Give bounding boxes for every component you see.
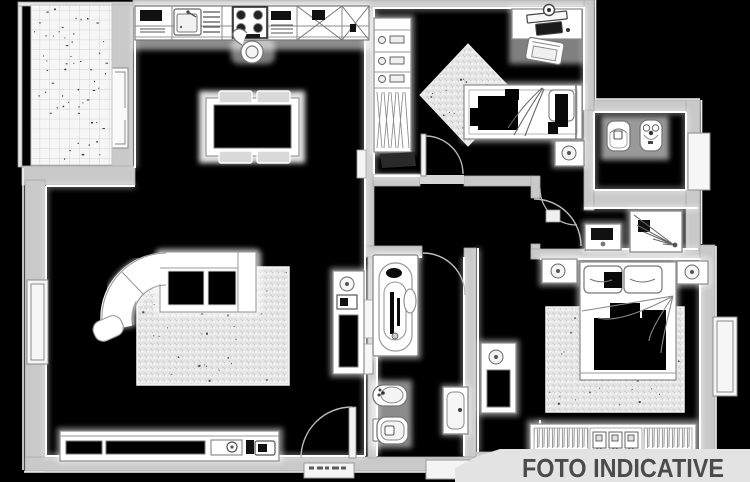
svg-text:FOTO INDICATIVE: FOTO INDICATIVE: [522, 453, 724, 482]
